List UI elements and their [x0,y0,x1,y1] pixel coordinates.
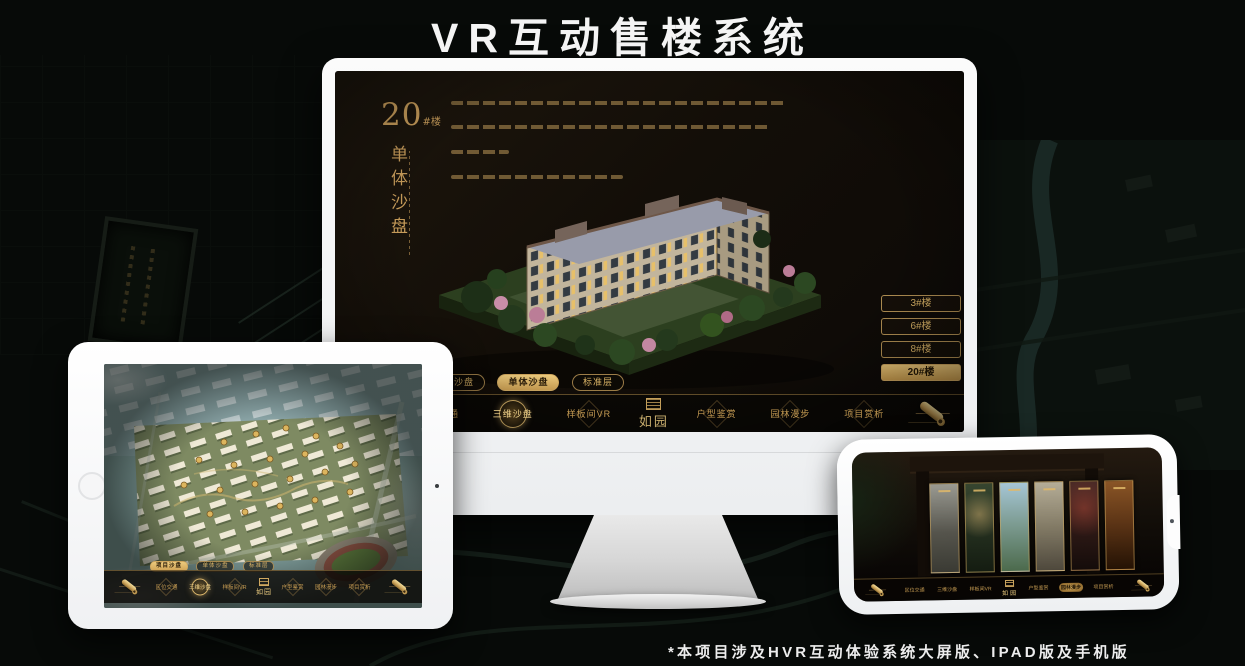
seal-icon [1005,579,1014,586]
bg-picture-frame [88,216,199,354]
page-title: VR互动售楼系统 [0,4,1245,64]
footnote: *本项目涉及HVR互动体验系统大屏版、IPAD版及手机版 [668,641,1130,662]
brand-logo: 如园 [256,578,272,597]
scene-card[interactable] [964,482,995,572]
nav-item-showroom-vr[interactable]: 样板间VR [220,581,248,593]
scene-card-caption [1078,488,1090,490]
scene: VR互动售楼系统 *本项目涉及HVR互动体验系统大屏版、IPAD版及手机版 20… [0,0,1245,666]
scene-card[interactable] [999,482,1030,572]
scene-card-caption [1113,487,1125,489]
phone-device: 区位交通 三维沙盘 样板间VR 如园 户型鉴赏 园林漫步 项目赏析 [836,434,1179,615]
scene-card-caption [938,490,950,492]
nav-item-garden-walk-active[interactable]: 园林漫步 [1059,582,1083,591]
scroll-icon[interactable] [867,583,885,597]
camera-icon [435,484,439,488]
nav-item-unit-plans[interactable]: 户型鉴赏 [280,581,306,593]
camera-icon [1170,519,1174,523]
bg-frame-text-column [141,245,156,325]
nav-item-location[interactable]: 区位交通 [903,585,927,594]
gate-lintel [910,453,1104,473]
bg-aerial-map [975,140,1245,470]
bg-frame-text-column [121,242,136,322]
nav-item-unit-plans[interactable]: 户型鉴赏 [1026,583,1050,592]
tablet-screen: 项目沙盘 单体沙盘 标准层 区位交通 三维沙盘 样板间VR 如园 户型鉴赏 园林… [104,364,422,608]
bottom-nav: 区位交通 三维沙盘 样板间VR 如园 户型鉴赏 园林漫步 项目赏析 [854,573,1164,601]
scene-card-caption [1008,489,1020,491]
scene-card[interactable] [1034,481,1065,571]
nav-item-project-gallery[interactable]: 项目赏析 [1091,582,1115,591]
monitor-stand-base [550,594,766,609]
scroll-icon[interactable] [1133,579,1151,593]
scroll-icon[interactable] [117,578,139,595]
nav-item-location[interactable]: 区位交通 [153,581,179,593]
home-button [78,472,106,500]
nav-item-3d-sandbox[interactable]: 三维沙盘 [187,581,213,593]
phone-notch [1167,495,1181,549]
scene-card-caption [973,489,985,491]
scene-card[interactable] [1069,480,1100,570]
scene-card[interactable] [1104,480,1135,570]
scroll-icon[interactable] [387,578,409,595]
nav-item-garden-walk[interactable]: 园林漫步 [313,581,339,593]
phone-screen: 区位交通 三维沙盘 样板间VR 如园 户型鉴赏 园林漫步 项目赏析 [852,447,1165,601]
scene-card-caption [1043,488,1055,490]
nav-item-project-gallery[interactable]: 项目赏析 [346,581,372,593]
tablet-device: 项目沙盘 单体沙盘 标准层 区位交通 三维沙盘 样板间VR 如园 户型鉴赏 园林… [68,342,453,629]
scene-card-row [929,480,1135,574]
nav-item-showroom-vr[interactable]: 样板间VR [968,584,994,593]
seal-icon [259,578,269,586]
bottom-nav: 区位交通 三维沙盘 样板间VR 如园 户型鉴赏 园林漫步 项目赏析 [104,570,422,603]
brand-logo: 如园 [1002,579,1018,596]
scene-card[interactable] [929,483,960,573]
nav-item-3d-sandbox[interactable]: 三维沙盘 [935,584,959,593]
